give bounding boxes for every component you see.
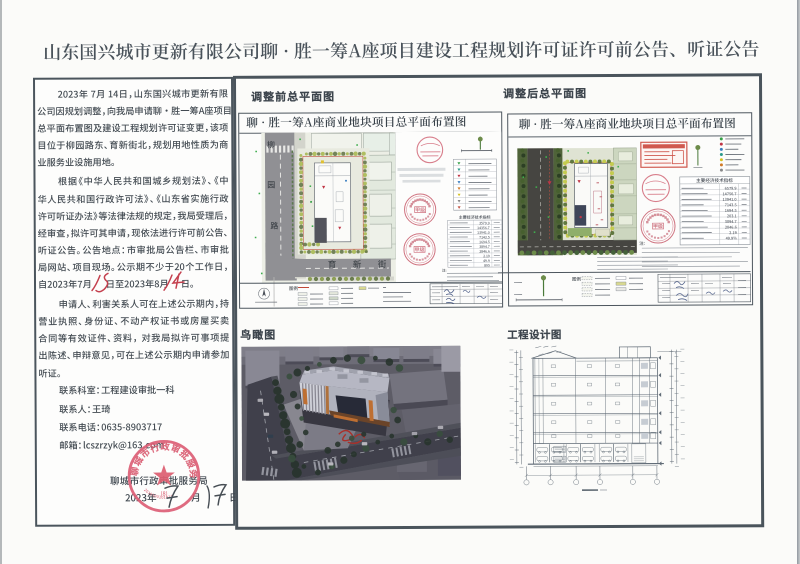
svg-text:柳: 柳 (267, 140, 275, 151)
svg-text:育: 育 (327, 258, 336, 270)
svg-text:6579.9: 6579.9 (725, 187, 737, 192)
svg-text:3894.7: 3894.7 (725, 220, 737, 225)
svg-text:14756.7: 14756.7 (722, 192, 736, 197)
svg-text:13941.0: 13941.0 (723, 198, 737, 203)
svg-text:甲级: 甲级 (414, 246, 424, 253)
svg-text:1694.5: 1694.5 (725, 209, 737, 214)
svg-text:图例: 图例 (289, 286, 299, 292)
svg-text:203.1: 203.1 (727, 214, 737, 219)
svg-text:主要经济技术指标: 主要经济技术指标 (696, 178, 733, 184)
svg-text:7143.5: 7143.5 (725, 203, 737, 208)
svg-text:2846.6: 2846.6 (725, 226, 737, 231)
svg-text:注:: 注: (639, 241, 645, 247)
svg-text:甲级: 甲级 (653, 223, 663, 230)
svg-text:甲级: 甲级 (415, 206, 425, 213)
svg-text:49.9%: 49.9% (726, 237, 738, 242)
svg-text:2.19: 2.19 (729, 231, 737, 236)
svg-text:895: 895 (484, 263, 490, 268)
svg-text:园: 园 (267, 180, 275, 191)
svg-text:街: 街 (377, 258, 386, 270)
svg-text:路: 路 (270, 221, 278, 232)
svg-text:图例: 图例 (572, 277, 582, 283)
svg-text:新: 新 (352, 258, 361, 270)
svg-text:注:: 注: (441, 268, 446, 274)
